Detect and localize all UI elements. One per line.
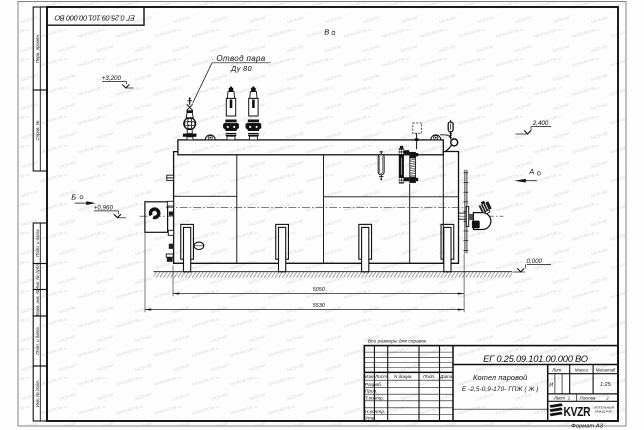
svg-text:Лит.: Лит. <box>551 368 562 373</box>
svg-text:ЕГ 0.25.09.101.00.000 ВО: ЕГ 0.25.09.101.00.000 ВО <box>54 13 135 22</box>
svg-text:Пров.: Пров. <box>365 389 378 395</box>
svg-text:+0,960: +0,960 <box>94 204 114 211</box>
svg-text:ЗАВОД РЗР: ЗАВОД РЗР <box>595 410 613 414</box>
svg-text:Справ. №: Справ. № <box>35 120 40 140</box>
svg-text:Б: Б <box>71 193 76 202</box>
svg-text:N докум.: N докум. <box>394 374 413 379</box>
svg-text:В: В <box>324 27 329 36</box>
svg-text:Ду 80: Ду 80 <box>230 64 252 73</box>
svg-text:Перв. примен.: Перв. примен. <box>35 34 40 63</box>
svg-text:Масса: Масса <box>575 368 589 373</box>
svg-text:Т.контр.: Т.контр. <box>365 395 384 401</box>
svg-text:Подп. и дата: Подп. и дата <box>35 327 40 355</box>
svg-text:Н.контр.: Н.контр. <box>365 409 385 415</box>
svg-text:Все размеры для справок: Все размеры для справок <box>368 338 427 344</box>
svg-text:Котел паровой: Котел паровой <box>473 373 527 382</box>
svg-text:Отвод пара: Отвод пара <box>216 54 265 63</box>
svg-text:Е -2,5-0,9-170- ГПЖ ( Ж ): Е -2,5-0,9-170- ГПЖ ( Ж ) <box>462 386 539 393</box>
svg-text:5050: 5050 <box>313 287 326 293</box>
svg-text:+3,200: +3,200 <box>102 75 122 82</box>
svg-text:2,400: 2,400 <box>532 120 549 127</box>
svg-text:Утв.: Утв. <box>365 416 376 422</box>
svg-text:И: И <box>549 383 553 389</box>
svg-text:KVZR: KVZR <box>564 404 591 420</box>
svg-text:Формат А3: Формат А3 <box>571 424 603 430</box>
svg-text:Листов: Листов <box>579 396 596 401</box>
svg-text:1:25: 1:25 <box>600 382 612 388</box>
svg-text:Разраб.: Разраб. <box>365 382 382 388</box>
svg-text:5530: 5530 <box>313 303 326 309</box>
svg-text:Масштаб: Масштаб <box>596 368 616 373</box>
svg-text:Лист: Лист <box>374 374 387 379</box>
svg-text:Подп. и дата: Подп. и дата <box>35 229 40 257</box>
svg-text:Лист: Лист <box>553 396 565 401</box>
svg-text:Инв. № подл.: Инв. № подл. <box>35 380 40 407</box>
svg-text:Подп.: Подп. <box>423 374 435 379</box>
svg-text:Инв. № дубл.: Инв. № дубл. <box>35 263 40 290</box>
svg-text:Дата: Дата <box>439 374 453 379</box>
svg-text:Изм: Изм <box>365 374 374 379</box>
svg-text:ЕГ 0.25.09.101.00.000 ВО: ЕГ 0.25.09.101.00.000 ВО <box>483 353 589 364</box>
svg-text:А: А <box>528 167 534 176</box>
svg-text:Взам. инв. №: Взам. инв. № <box>35 289 40 316</box>
